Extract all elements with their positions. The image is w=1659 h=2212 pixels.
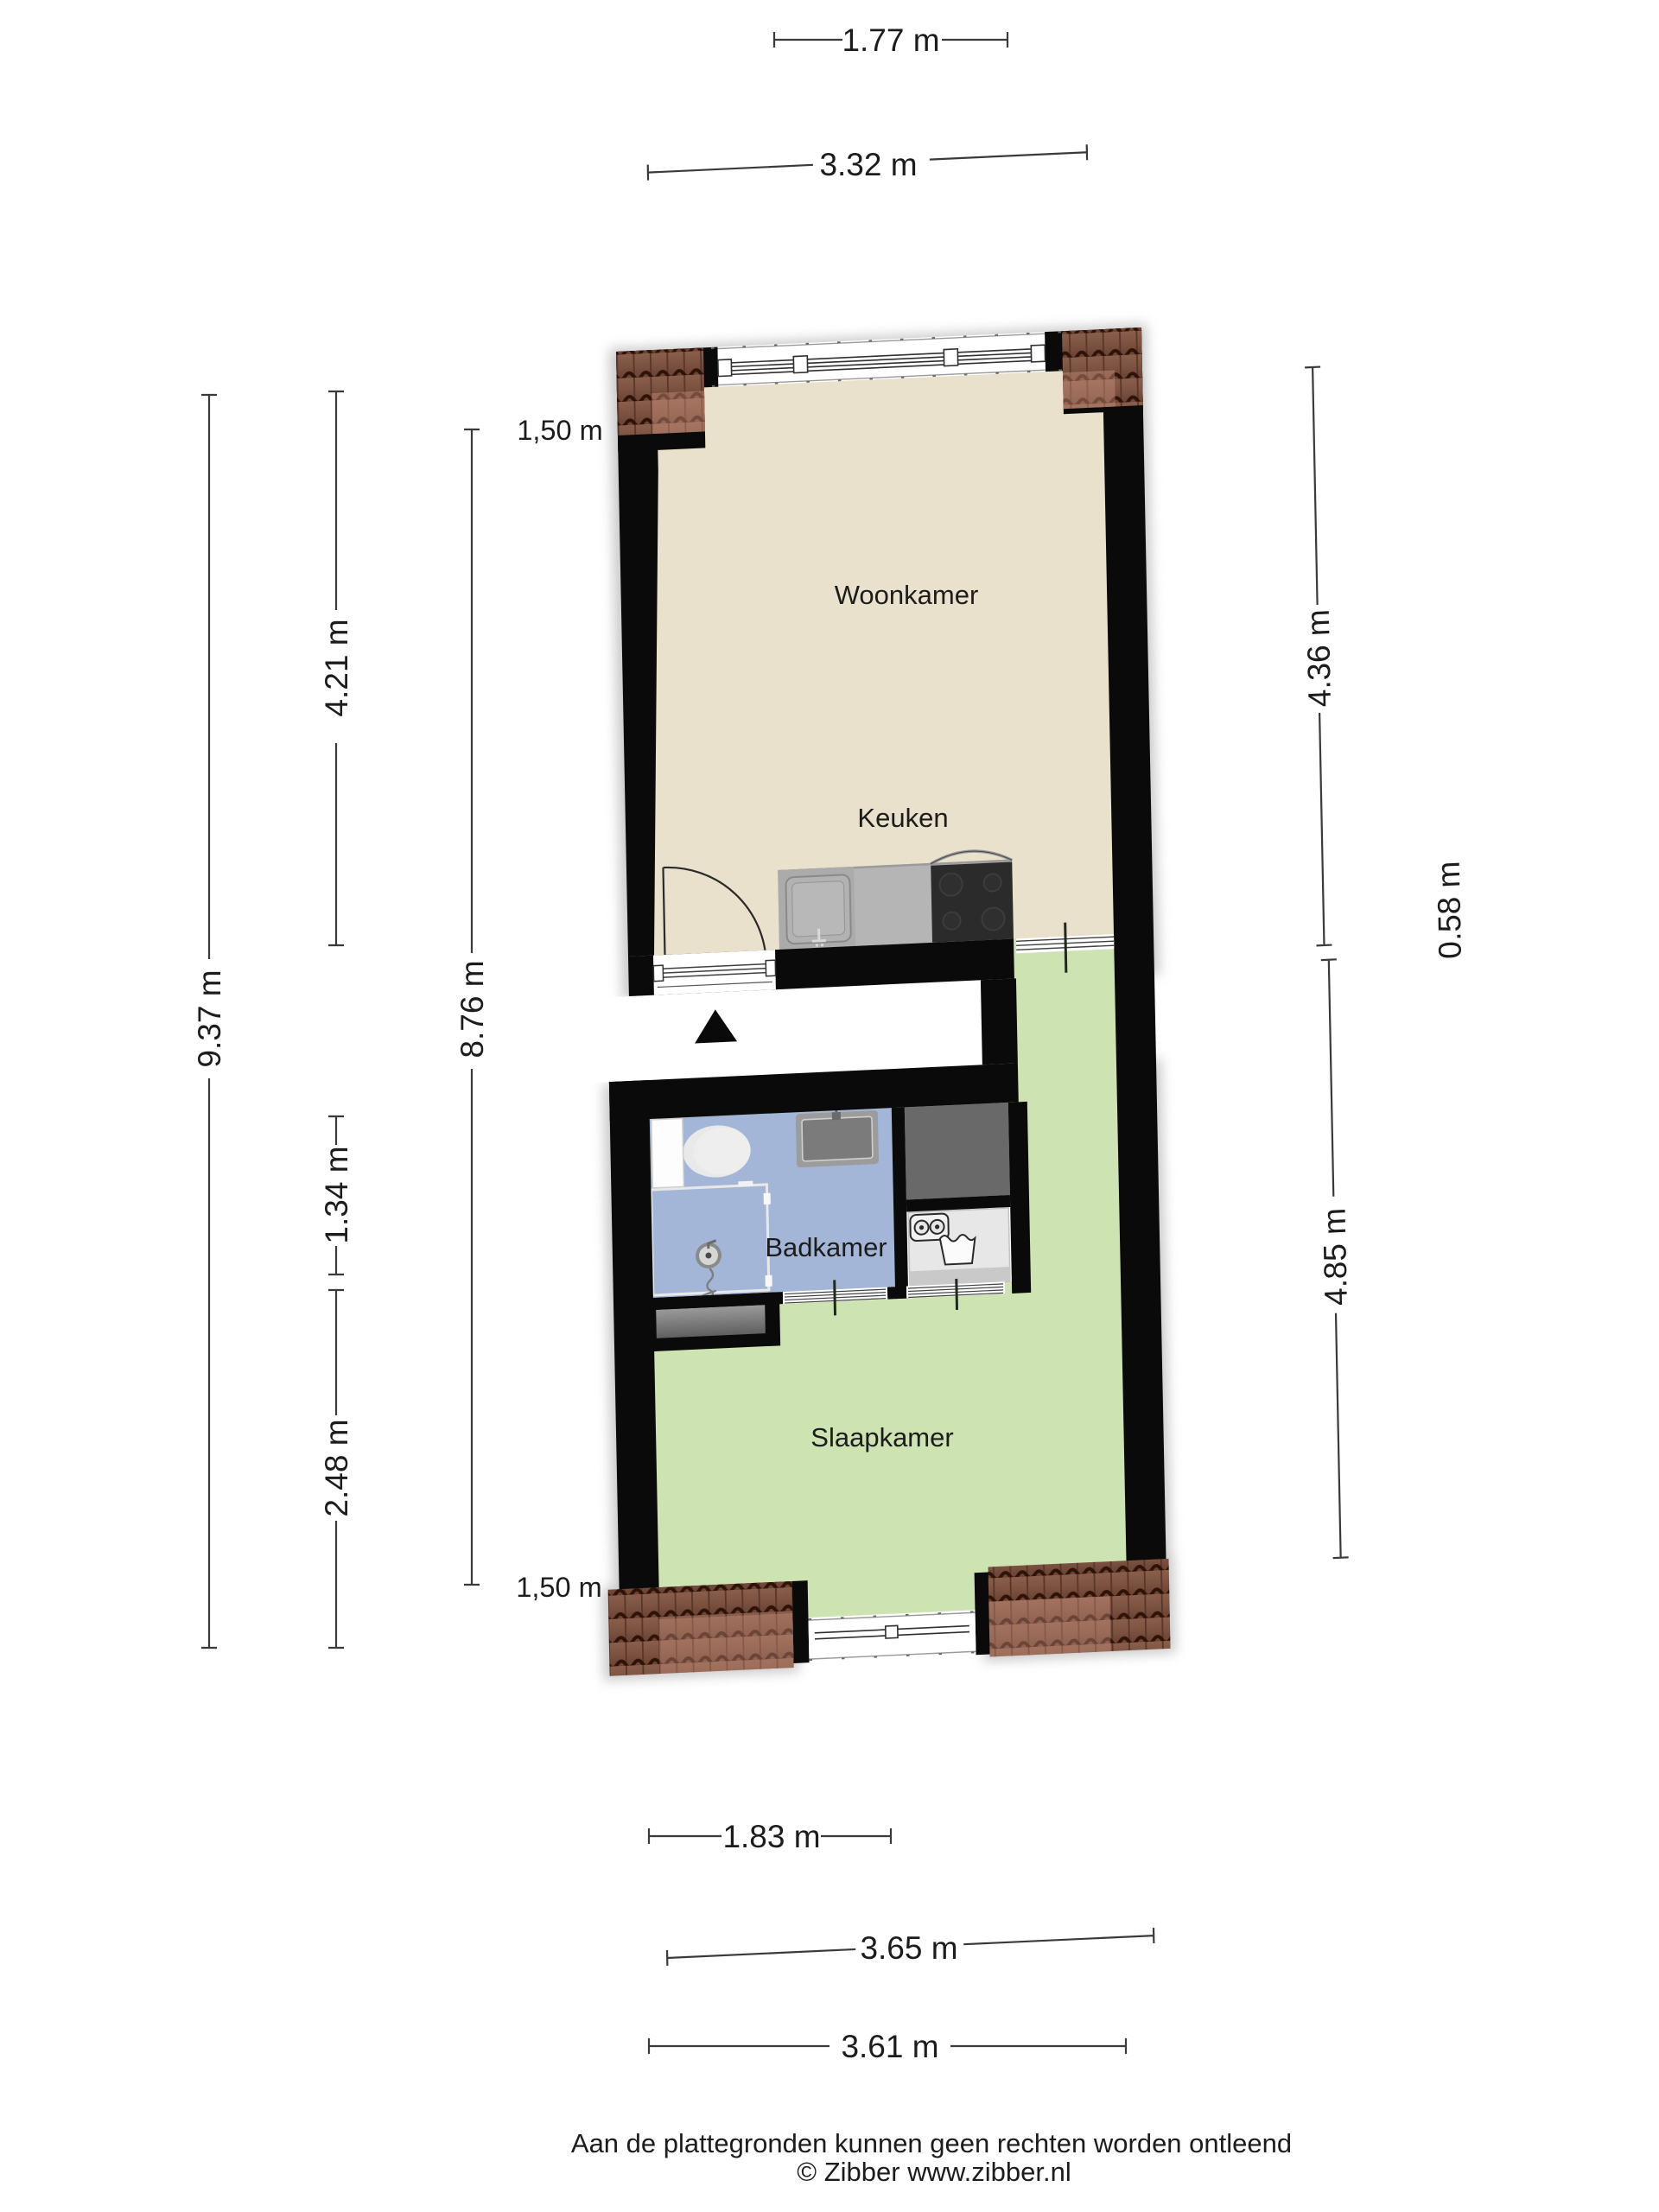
svg-text:0.58 m: 0.58 m bbox=[1430, 861, 1468, 960]
svg-text:Slaapkamer: Slaapkamer bbox=[810, 1422, 953, 1452]
svg-text:8.76 m: 8.76 m bbox=[454, 960, 490, 1058]
svg-text:Woonkamer: Woonkamer bbox=[835, 580, 979, 610]
svg-text:9.37 m: 9.37 m bbox=[192, 969, 227, 1067]
svg-text:Keuken: Keuken bbox=[857, 803, 948, 833]
svg-text:1.83 m: 1.83 m bbox=[722, 1819, 820, 1854]
svg-text:3.65 m: 3.65 m bbox=[860, 1930, 957, 1966]
svg-text:1.77 m: 1.77 m bbox=[842, 22, 939, 58]
svg-text:2.48 m: 2.48 m bbox=[319, 1419, 354, 1516]
svg-text:Aan de plattegronden kunnen ge: Aan de plattegronden kunnen geen rechten… bbox=[571, 2128, 1292, 2158]
svg-text:4.36 m: 4.36 m bbox=[1300, 608, 1338, 708]
svg-text:1.34 m: 1.34 m bbox=[319, 1146, 354, 1243]
svg-text:4.21 m: 4.21 m bbox=[319, 619, 354, 716]
svg-text:4.85 m: 4.85 m bbox=[1316, 1207, 1354, 1306]
svg-text:© Zibber www.zibber.nl: © Zibber www.zibber.nl bbox=[797, 2157, 1071, 2187]
svg-text:3.32 m: 3.32 m bbox=[819, 147, 917, 182]
svg-text:3.61 m: 3.61 m bbox=[841, 2029, 938, 2064]
svg-text:1,50 m: 1,50 m bbox=[516, 1572, 601, 1603]
svg-text:1,50 m: 1,50 m bbox=[517, 415, 602, 446]
svg-text:Badkamer: Badkamer bbox=[765, 1232, 887, 1262]
